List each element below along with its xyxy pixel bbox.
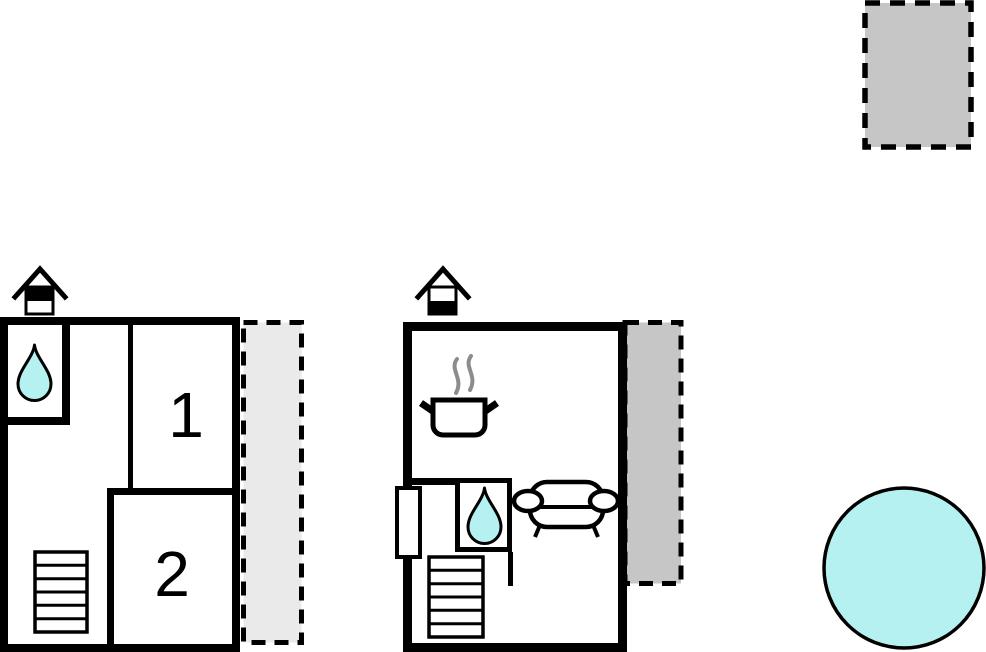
steam-lines [455,356,473,393]
terrace-a [240,317,306,649]
water-drop-icon [466,486,503,544]
wall-room1-left [128,325,133,491]
room-1-label: 1 [168,383,204,447]
patio-dashed-rect [858,0,978,153]
wall-stub-below-bathroom [508,552,513,586]
room-2-label: 2 [154,542,190,606]
pool [820,484,986,652]
patio-fill [865,3,971,147]
water-drop-shape [468,488,501,544]
sofa-armrest-right [590,491,618,511]
wall-room2-left [107,488,114,644]
stairs-icon-b [427,555,485,639]
wall-bathroom-a-bottom [8,417,70,425]
fireplace-icon [13,264,67,320]
cooking-pot-icon [414,348,504,442]
floor-plan: 1 2 [0,0,986,652]
fireplace-icon [416,264,470,320]
sofa-armrest-left [514,491,542,511]
wall-room2-top [107,488,232,495]
fireplace-firebox [26,287,53,301]
fireplace-firebox [429,301,456,314]
door [395,486,422,559]
pool-circle [824,488,984,648]
terrace-b [620,318,688,590]
wall-bathroom-a-right [62,325,70,425]
terrace-a-fill [244,323,302,643]
terrace-b-fill [625,323,681,584]
water-drop-icon [16,343,53,401]
pot-body [433,400,485,435]
stairs-icon-a [33,550,89,634]
water-drop-shape [18,345,51,401]
sofa-icon [512,476,618,540]
